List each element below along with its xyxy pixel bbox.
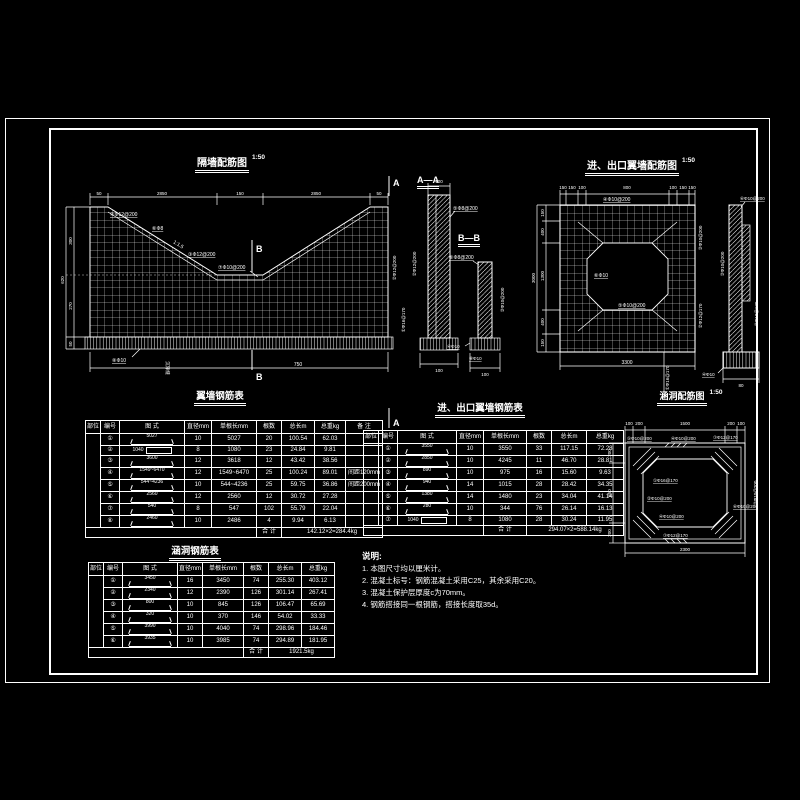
column-header: 单根长mm [203, 563, 244, 576]
cell: 12 [185, 468, 212, 480]
headwall-grid [560, 205, 695, 352]
shape-glyph [146, 447, 172, 454]
rebar-row: ⑦1040810802830.2411.95 [364, 516, 624, 526]
dim-label: 400 [540, 228, 545, 236]
cell: 1080 [484, 516, 527, 526]
cell: 298.96 [269, 624, 302, 636]
dim-label: 100 [578, 185, 586, 190]
column-header: 直径mm [457, 431, 484, 444]
dim-label: 300 [68, 237, 73, 245]
shape-glyph [406, 449, 448, 455]
shape-cell: 2560 [120, 492, 185, 504]
shape-glyph [421, 517, 447, 524]
shape-cell: 890 [398, 468, 457, 480]
column-header: 总重kg [302, 563, 335, 576]
cell: 24.84 [282, 446, 315, 456]
cell: 28.42 [552, 480, 587, 492]
shape-glyph [406, 497, 448, 503]
column-header: 编号 [104, 563, 123, 576]
cell: 845 [203, 600, 244, 612]
rebar-row: ③890109751615.609.63 [364, 468, 624, 480]
cell: 16.13 [587, 504, 624, 516]
headwall-drawing: 150 150 100 800 100 150 150 150 400 1300… [530, 176, 770, 411]
shape-cell: 3550 [398, 444, 457, 456]
culvert-table-title: 涵洞钢筋表 [125, 543, 265, 561]
shape-cell: 3990 [123, 624, 178, 636]
rebar-callout: ②Φ12@200 [412, 251, 417, 276]
rebar-callout: ③Φ10@200 [500, 287, 505, 312]
shape-cell: 2340 [123, 588, 178, 600]
rebar-row: ④3201037014654.0233.33 [89, 612, 335, 624]
rebar-callout: ⑦Φ10@200 [218, 265, 246, 271]
rebar-shape: 1549~6470 [121, 468, 183, 479]
title-scale: 1:50 [252, 154, 265, 161]
cell: 54.02 [269, 612, 302, 624]
shape-glyph [406, 485, 448, 491]
dim-label: 270 [68, 302, 73, 310]
cell: 12 [185, 456, 212, 468]
shape-cell: 320 [123, 612, 178, 624]
cell: 3618 [212, 456, 257, 468]
column-header: 总长m [269, 563, 302, 576]
rebar-shape: 540 [121, 504, 183, 515]
section-bb: ⑥Φ8@200 ③Φ10@200 ④Φ10 ⑧Φ10 100 [447, 255, 505, 377]
cell: 184.46 [302, 624, 335, 636]
shape-cell: 2460 [120, 516, 185, 528]
cell: 106.47 [269, 600, 302, 612]
rebar-callout: ⑥Φ8@200 [449, 255, 474, 261]
rebar-shape: 1040 [399, 517, 455, 524]
cell: ④ [101, 468, 120, 480]
rebar-shape: 2850 [399, 456, 455, 467]
dim-label: 100 [737, 421, 745, 426]
cell: 3985 [203, 636, 244, 648]
rebar-shape: 2460 [121, 516, 183, 527]
cell: 10 [185, 434, 212, 446]
column-header: 直径mm [178, 563, 203, 576]
wall-elevation-drawing: 50 2850 150 2850 50 300 270 50 620 750 ⑧… [60, 168, 410, 453]
rebar-callout: ③Φ10@200 [698, 225, 703, 250]
cell: 65.69 [302, 600, 335, 612]
note-line: 2. 混凝土标号：钢筋混凝土采用C25，其余采用C20。 [362, 575, 652, 587]
note-line: 1. 本图尺寸均以厘米计。 [362, 563, 652, 575]
cell: 12 [257, 492, 282, 504]
rebar-callout: ⑥Φ10 [594, 273, 608, 279]
cell: 34.35 [587, 480, 624, 492]
note-line: 4. 钢筋搭接同一根钢筋，搭接长度取35d。 [362, 599, 652, 611]
cell: 10 [178, 612, 203, 624]
cell: 33 [527, 444, 552, 456]
cell: 100.54 [282, 434, 315, 446]
rebar-row: ④1549~6470121549~647025100.2489.01间距120m… [86, 468, 383, 480]
cell: 15.60 [552, 468, 587, 480]
cell: 34.04 [552, 492, 587, 504]
shape-cell: 5027 [120, 434, 185, 446]
shape-cell: 1040 [120, 446, 185, 456]
total-label: 合 计 [484, 526, 527, 536]
dim-label: 200 [635, 421, 643, 426]
dim-label: 50 [96, 191, 102, 196]
cell: ⑤ [379, 492, 398, 504]
cell: 100.24 [282, 468, 315, 480]
dim-label: 150 [540, 209, 545, 217]
cell: 28 [527, 480, 552, 492]
cell: 38.56 [315, 456, 346, 468]
column-header: 总长m [552, 431, 587, 444]
sections-aa-bb-drawing: 100 ⑤Φ8@200 ②Φ12@200 100 ⑥Φ8@200 ③Φ10@20… [403, 172, 523, 387]
cell: 89.01 [315, 468, 346, 480]
column-header: 部位 [364, 431, 379, 444]
headwall-title: 进、出口翼墙配筋图1:50 [540, 157, 740, 176]
joint-label: 沉降缝 [164, 361, 171, 375]
cell: 26.14 [552, 504, 587, 516]
dim-label: 3300 [621, 360, 632, 366]
dim-label: 150 [236, 191, 244, 196]
section-marker-a: A [393, 418, 400, 428]
rebar-table: 部位编号图 式直径mm单根长mm根数总长m总重kg①35501035503311… [363, 430, 624, 536]
cell: 10 [457, 456, 484, 468]
headwall-side-section: ⑥Φ10@200 ③Φ10@200 ②Φ12@170 ④Φ10 80 [702, 196, 765, 388]
shape-glyph [129, 593, 171, 599]
rebar-shape: 5027 [121, 434, 183, 445]
cell: 10 [457, 444, 484, 456]
column-header: 图 式 [398, 431, 457, 444]
inout-wingwall-rebar-table: 部位编号图 式直径mm单根长mm根数总长m总重kg①35501035503311… [363, 430, 624, 536]
cell: 23 [257, 446, 282, 456]
rebar-shape: 320 [124, 612, 176, 623]
cell [89, 648, 244, 658]
dim-label: 150 [568, 185, 576, 190]
culvert-callouts: ⑤Φ10@200 ④Φ10@200 ⑦Φ12@170 ①Φ16@170 ②Φ10… [627, 435, 758, 538]
rebar-shape: 890 [399, 468, 455, 479]
cell: 301.14 [269, 588, 302, 600]
dim-label: 50 [376, 191, 382, 196]
shape-glyph [406, 509, 448, 515]
total-value: 1921.5kg [269, 648, 335, 658]
dim-label: 100 [435, 179, 443, 184]
shape-glyph [129, 581, 171, 587]
cell: 12 [257, 456, 282, 468]
column-header: 编号 [379, 431, 398, 444]
cell: ④ [379, 480, 398, 492]
shape-cell: 800 [123, 600, 178, 612]
rebar-callout: ③Φ10@200 [720, 251, 725, 276]
cell [86, 528, 257, 538]
rebar-callout: ③Φ12@200 [188, 252, 216, 258]
rebar-table: 部位编号图 式直径mm单根长mm根数总长m总重kg①34501634507425… [88, 562, 335, 658]
culvert-outline [625, 443, 745, 543]
cell: 25 [257, 480, 282, 492]
section-marker-a: A [393, 178, 400, 188]
cell: ⑤ [101, 480, 120, 492]
shape-glyph [406, 461, 448, 467]
dim-label: 100 [435, 368, 443, 373]
total-label: 合 计 [244, 648, 269, 658]
cell: 3550 [484, 444, 527, 456]
culvert-plan-drawing: 100 200 1500 200 100 200 850 200 2300 ⑤Φ… [605, 406, 770, 558]
shape-cell: 3600 [120, 456, 185, 468]
part-cell [364, 444, 379, 526]
rebar-shape: 1040 [121, 447, 183, 454]
dim-label: 800 [623, 185, 631, 190]
rebar-callout: ⑧Φ10 [469, 356, 482, 361]
cell: 41.14 [587, 492, 624, 504]
column-header: 总重kg [315, 421, 346, 434]
cell: ⑦ [379, 516, 398, 526]
dim-label: 150 [540, 339, 545, 347]
cell: 6.13 [315, 516, 346, 528]
shape-length-label: 1040 [407, 518, 418, 523]
cell: 4040 [203, 624, 244, 636]
cell: 1015 [484, 480, 527, 492]
cell: 62.03 [315, 434, 346, 446]
cell: 11.95 [587, 516, 624, 526]
cell: ① [379, 444, 398, 456]
part-cell [86, 434, 101, 528]
column-header: 部位 [86, 421, 101, 434]
title-text: 涵洞钢筋表 [169, 543, 221, 561]
cell: 33.33 [302, 612, 335, 624]
rebar-callout: ⑤Φ8@200 [453, 206, 478, 212]
cell: 267.41 [302, 588, 335, 600]
cell: 9.94 [282, 516, 315, 528]
rebar-callout: ②Φ12@170 [698, 303, 703, 328]
cell: 74 [244, 624, 269, 636]
total-label: 合 计 [257, 528, 282, 538]
section-marker-b: B [256, 372, 263, 382]
cell: 255.30 [269, 576, 302, 588]
shape-glyph [131, 473, 173, 479]
rebar-shape: 3990 [124, 624, 176, 635]
rebar-row: ③36001236181243.4238.56 [86, 456, 383, 468]
cell: 22.04 [315, 504, 346, 516]
dim-label: 2300 [680, 547, 691, 552]
rebar-shape: 3935 [124, 636, 176, 647]
dim-label: 100 [669, 185, 677, 190]
column-header: 总长m [282, 421, 315, 434]
rebar-row: ②1040810802324.849.81 [86, 446, 383, 456]
rebar-shape: 3550 [399, 444, 455, 455]
cell: 146 [244, 612, 269, 624]
total-value: 294.07×2=588.14kg [527, 526, 624, 536]
cell: ② [104, 588, 123, 600]
cell: ⑥ [379, 504, 398, 516]
cell: 11 [527, 456, 552, 468]
rebar-row: ⑧246010248649.946.13 [86, 516, 383, 528]
cell: 126 [244, 600, 269, 612]
cell: 43.42 [282, 456, 315, 468]
cell: 16 [178, 576, 203, 588]
cell: 16 [527, 468, 552, 480]
rebar-shape: 3450 [124, 576, 176, 587]
shape-cell: 3935 [123, 636, 178, 648]
cell: ① [104, 576, 123, 588]
rebar-row: ②2340122390126301.14267.41 [89, 588, 335, 600]
rebar-callout: ⑤Φ10@200 [618, 303, 646, 309]
column-header: 单根长mm [484, 431, 527, 444]
shape-cell: 940 [398, 480, 457, 492]
column-header: 根数 [257, 421, 282, 434]
cell: ⑧ [101, 516, 120, 528]
cell: 74 [244, 636, 269, 648]
dim-label: 150 [679, 185, 687, 190]
cell: 27.28 [315, 492, 346, 504]
dim-label: 400 [540, 318, 545, 326]
cell: 10 [185, 480, 212, 492]
cell: 28.81 [587, 456, 624, 468]
cell: 547 [212, 504, 257, 516]
rebar-row: ⑥393510398574294.89181.95 [89, 636, 335, 648]
cell: 102 [257, 504, 282, 516]
cell: 10 [457, 504, 484, 516]
rebar-callout: ④Φ10@200 [671, 436, 696, 441]
shape-cell: 1380 [398, 492, 457, 504]
dim-label: 200 [727, 421, 735, 426]
rebar-callout: ⑦Φ12@170 [663, 533, 688, 538]
headwall-left-dimension: 150 400 1300 400 150 3000 [531, 205, 560, 352]
cell: 370 [203, 612, 244, 624]
dim-label: 50 [68, 341, 73, 347]
cell: 117.15 [552, 444, 587, 456]
rebar-callout: ④Φ12@200 [110, 212, 138, 218]
rebar-callout: ⑤Φ10@200 [627, 436, 652, 441]
cell: 9.63 [587, 468, 624, 480]
cell: 14 [457, 492, 484, 504]
cell: 4245 [484, 456, 527, 468]
column-header: 编号 [101, 421, 120, 434]
cell: 10 [185, 516, 212, 528]
cell: 8 [185, 504, 212, 516]
rebar-callout: ④Φ10@200 [659, 514, 684, 519]
dim-label: 2850 [157, 191, 168, 196]
dim-label: 100 [625, 421, 633, 426]
cell: ② [101, 446, 120, 456]
column-header: 根数 [244, 563, 269, 576]
cell: 2486 [212, 516, 257, 528]
cell: 10 [178, 624, 203, 636]
cell: 8 [185, 446, 212, 456]
rebar-shape: 280 [399, 504, 455, 515]
rebar-row: ⑥280103447626.1416.13 [364, 504, 624, 516]
dim-label: 1300 [540, 270, 545, 281]
cell: 59.75 [282, 480, 315, 492]
wall-outline [85, 207, 393, 349]
cell: 8 [457, 516, 484, 526]
cell [364, 526, 484, 536]
cell: ⑥ [104, 636, 123, 648]
shape-cell: 3450 [123, 576, 178, 588]
cell: 344 [484, 504, 527, 516]
cell: 14 [457, 480, 484, 492]
rebar-callout: ⑥Φ8 [152, 226, 163, 232]
rebar-callout: ①Φ16@170 [653, 478, 678, 483]
rebar-row: ①355010355033117.1572.28 [364, 444, 624, 456]
rebar-callout: ①Φ16@170 [665, 365, 670, 390]
part-cell [89, 576, 104, 648]
rebar-shape: 1380 [399, 492, 455, 503]
notes-title: 说明: [362, 550, 652, 562]
cell: ③ [101, 456, 120, 468]
wall-bottom-dimension: 750 ⑧Φ10 沉降缝 [90, 349, 388, 375]
shape-glyph [131, 509, 173, 515]
rebar-shape: 544~4236 [121, 480, 183, 491]
shape-glyph [131, 439, 173, 445]
cell: ③ [379, 468, 398, 480]
cell: 10 [178, 636, 203, 648]
dim-label: 750 [294, 362, 303, 368]
cell: 28 [527, 516, 552, 526]
title-text: 进、出口翼墙配筋图 [585, 157, 679, 176]
shape-glyph [131, 461, 173, 467]
rebar-shape: 2340 [124, 588, 176, 599]
shape-glyph [129, 617, 171, 623]
dim-label: 150 [688, 185, 696, 190]
cell: 4 [257, 516, 282, 528]
shape-cell: 544~4236 [120, 480, 185, 492]
shape-glyph [129, 629, 171, 635]
cell: 76 [527, 504, 552, 516]
cell: 5027 [212, 434, 257, 446]
section-marker-b: B [256, 244, 263, 254]
cell: 46.70 [552, 456, 587, 468]
cell: 30.24 [552, 516, 587, 526]
cell: 975 [484, 468, 527, 480]
rebar-row: ④9401410152828.4234.35 [364, 480, 624, 492]
column-header: 单根长mm [212, 421, 257, 434]
column-header: 图 式 [123, 563, 178, 576]
notes-block: 说明: 1. 本图尺寸均以厘米计。 2. 混凝土标号：钢筋混凝土采用C25，其余… [362, 550, 652, 611]
rebar-shape: 2560 [121, 492, 183, 503]
cell: ① [101, 434, 120, 446]
cell: 544~4236 [212, 480, 257, 492]
rebar-row: ①502710502720100.5462.03 [86, 434, 383, 446]
rebar-row: ③80010845126106.4765.69 [89, 600, 335, 612]
headwall-bottom-dimension: 3300 ①Φ16@170 [560, 352, 695, 396]
total-row: 合 计1921.5kg [89, 648, 335, 658]
rebar-callout: ④Φ10@200 [603, 197, 631, 203]
rebar-callout: ⑥Φ10@200 [740, 196, 765, 201]
rebar-callout: ⑦Φ12@170 [713, 435, 738, 440]
dim-total-label: 3000 [531, 272, 536, 283]
cell: ④ [104, 612, 123, 624]
shape-glyph [406, 473, 448, 479]
shape-cell: 1549~6470 [120, 468, 185, 480]
dim-label: 80 [738, 383, 744, 388]
column-header: 直径mm [185, 421, 212, 434]
cell: 30.72 [282, 492, 315, 504]
rebar-callout: ②Φ12@170 [754, 301, 759, 326]
cell: ② [379, 456, 398, 468]
cell: ⑦ [101, 504, 120, 516]
rebar-table: 部位编号图 式直径mm单根长mm根数总长m总重kg备 注①50271050272… [85, 420, 383, 538]
cell: ⑤ [104, 624, 123, 636]
shape-glyph [131, 521, 173, 527]
cell: 72.28 [587, 444, 624, 456]
shape-length-label: 1040 [132, 448, 143, 453]
rebar-row: ⑥25601225601230.7227.28 [86, 492, 383, 504]
cell: 74 [244, 576, 269, 588]
cell: 1549~6470 [212, 468, 257, 480]
rebar-callout: ③Φ10@200 [753, 480, 758, 505]
wing-wall-rebar-table: 部位编号图 式直径mm单根长mm根数总长m总重kg备 注①50271050272… [85, 420, 383, 538]
culvert-rebar-table: 部位编号图 式直径mm单根长mm根数总长m总重kg①34501634507425… [88, 562, 335, 658]
rebar-shape: 800 [124, 600, 176, 611]
total-row: 合 计294.07×2=588.14kg [364, 526, 624, 536]
cell: 55.79 [282, 504, 315, 516]
cell: 12 [185, 492, 212, 504]
column-header: 根数 [527, 431, 552, 444]
dim-total-label: 620 [60, 276, 65, 284]
